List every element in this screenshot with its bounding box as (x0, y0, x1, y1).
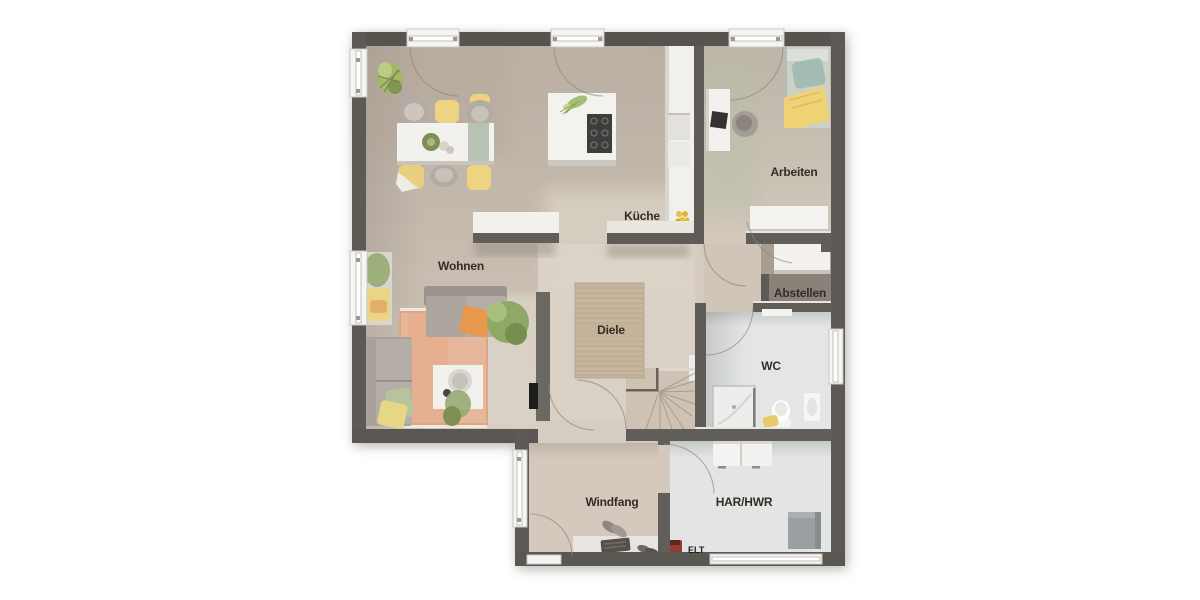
svg-text:Küche: Küche (624, 209, 660, 223)
svg-text:HAR/HWR: HAR/HWR (716, 495, 773, 509)
svg-text:Diele: Diele (597, 323, 625, 337)
svg-text:Windfang: Windfang (586, 495, 639, 509)
svg-text:Wohnen: Wohnen (438, 259, 484, 273)
svg-text:Arbeiten: Arbeiten (770, 165, 817, 179)
svg-text:WC: WC (761, 359, 781, 373)
svg-text:ELT: ELT (688, 545, 705, 555)
svg-text:Abstellen: Abstellen (774, 286, 826, 300)
